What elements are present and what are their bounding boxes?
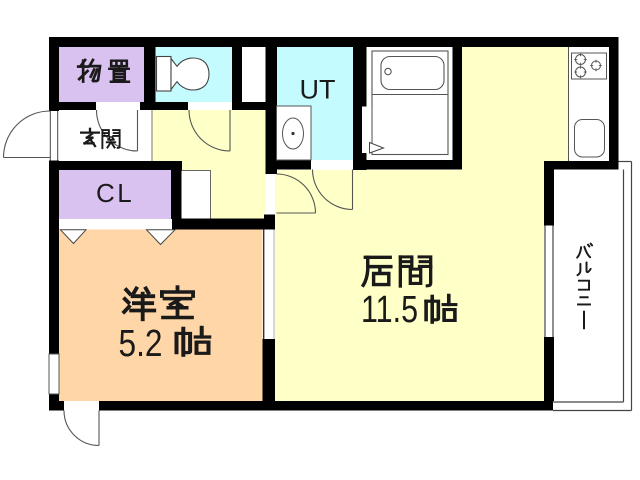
svg-text:CL: CL (96, 178, 134, 208)
svg-text:11.5: 11.5 (361, 289, 418, 331)
svg-text:5.2: 5.2 (119, 323, 163, 365)
svg-text:UT: UT (300, 75, 336, 105)
